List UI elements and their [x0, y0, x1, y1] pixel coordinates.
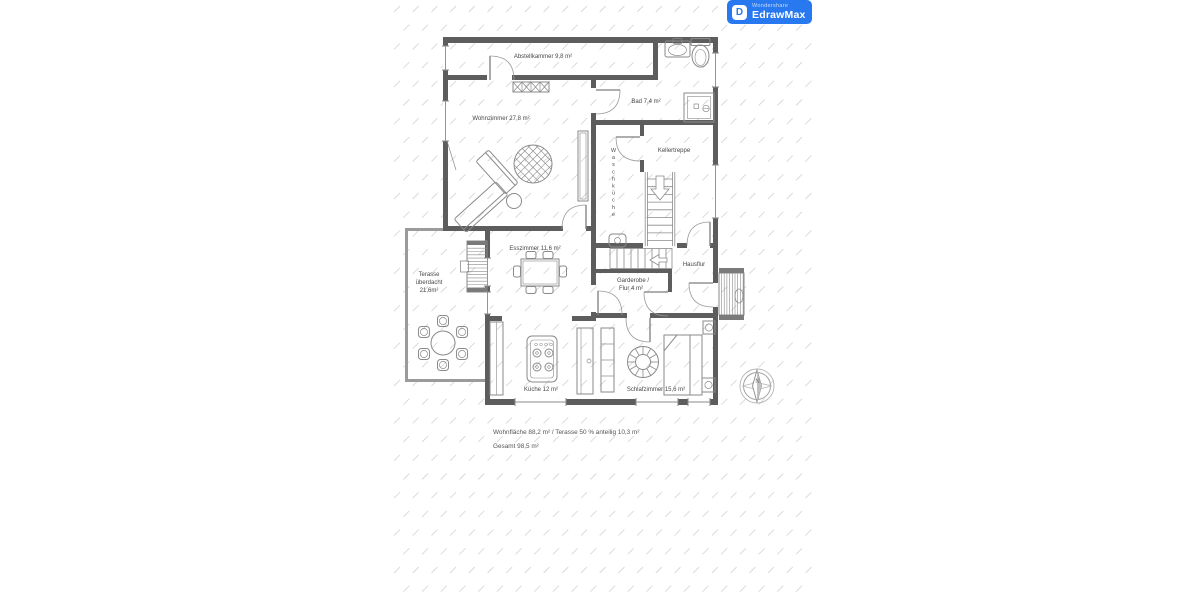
floor-plan: N Abstellkammer 9,8 m² Wohnzimmer 27,8 m… [0, 0, 1200, 600]
furniture [418, 39, 744, 396]
badge-brand: EdrawMax [752, 10, 806, 21]
room-label-terasse-2: überdacht [416, 280, 443, 286]
edrawmax-watermark-badge[interactable]: D Wondershare EdrawMax [727, 0, 812, 24]
room-labels: Abstellkammer 9,8 m² Wohnzimmer 27,8 m² … [416, 54, 706, 393]
stove [527, 336, 557, 382]
walls [443, 37, 718, 405]
room-label-waschkueche: Waschküche [611, 148, 616, 218]
badge-text: Wondershare EdrawMax [752, 4, 806, 20]
sofa-group [447, 141, 522, 232]
room-label-kueche: Küche 12 m² [524, 387, 558, 393]
lamp-line [447, 141, 456, 170]
summary-line-2: Gesamt 98,5 m² [493, 443, 539, 450]
room-label-garderobe-1: Garderobe / [617, 278, 649, 284]
room-label-garderobe-2: Flur 4 m² [619, 286, 643, 292]
canvas: N Abstellkammer 9,8 m² Wohnzimmer 27,8 m… [0, 0, 1200, 600]
sideboard [578, 131, 588, 201]
side-table [507, 194, 522, 209]
summary-line-1: Wohnfläche 88,2 m² / Terasse 50 % anteil… [493, 429, 639, 436]
bed [664, 335, 702, 395]
kitchen-counter-right [577, 328, 593, 394]
compass-rose: N [740, 369, 774, 403]
compass-north-label: N [755, 379, 759, 385]
room-label-kellertreppe: Kellertreppe [658, 148, 691, 154]
room-label-wohnzimmer: Wohnzimmer 27,8 m² [472, 116, 529, 122]
hatch-pattern [394, 6, 811, 592]
room-label-terasse-3: 21,6m² [420, 288, 439, 294]
edrawmax-logo-glyph: D [736, 7, 743, 18]
edrawmax-logo-icon: D [732, 5, 747, 20]
summary-text: Wohnfläche 88,2 m² / Terasse 50 % anteil… [493, 429, 639, 450]
terrace-table [418, 316, 467, 371]
kitchen-counter-left [490, 322, 503, 395]
room-label-terasse-1: Terasse [418, 272, 440, 278]
sink [665, 39, 690, 58]
room-label-abstellkammer: Abstellkammer 9,8 m² [514, 54, 572, 60]
room-label-esszimmer: Esszimmer 11,6 m² [509, 246, 560, 252]
room-label-bad: Bad 7,4 m² [631, 99, 660, 105]
shower [684, 93, 714, 122]
room-label-hausflur: Hausflur [683, 262, 705, 268]
room-label-schlafzimmer: Schlafzimmer 15,6 m² [627, 387, 685, 393]
